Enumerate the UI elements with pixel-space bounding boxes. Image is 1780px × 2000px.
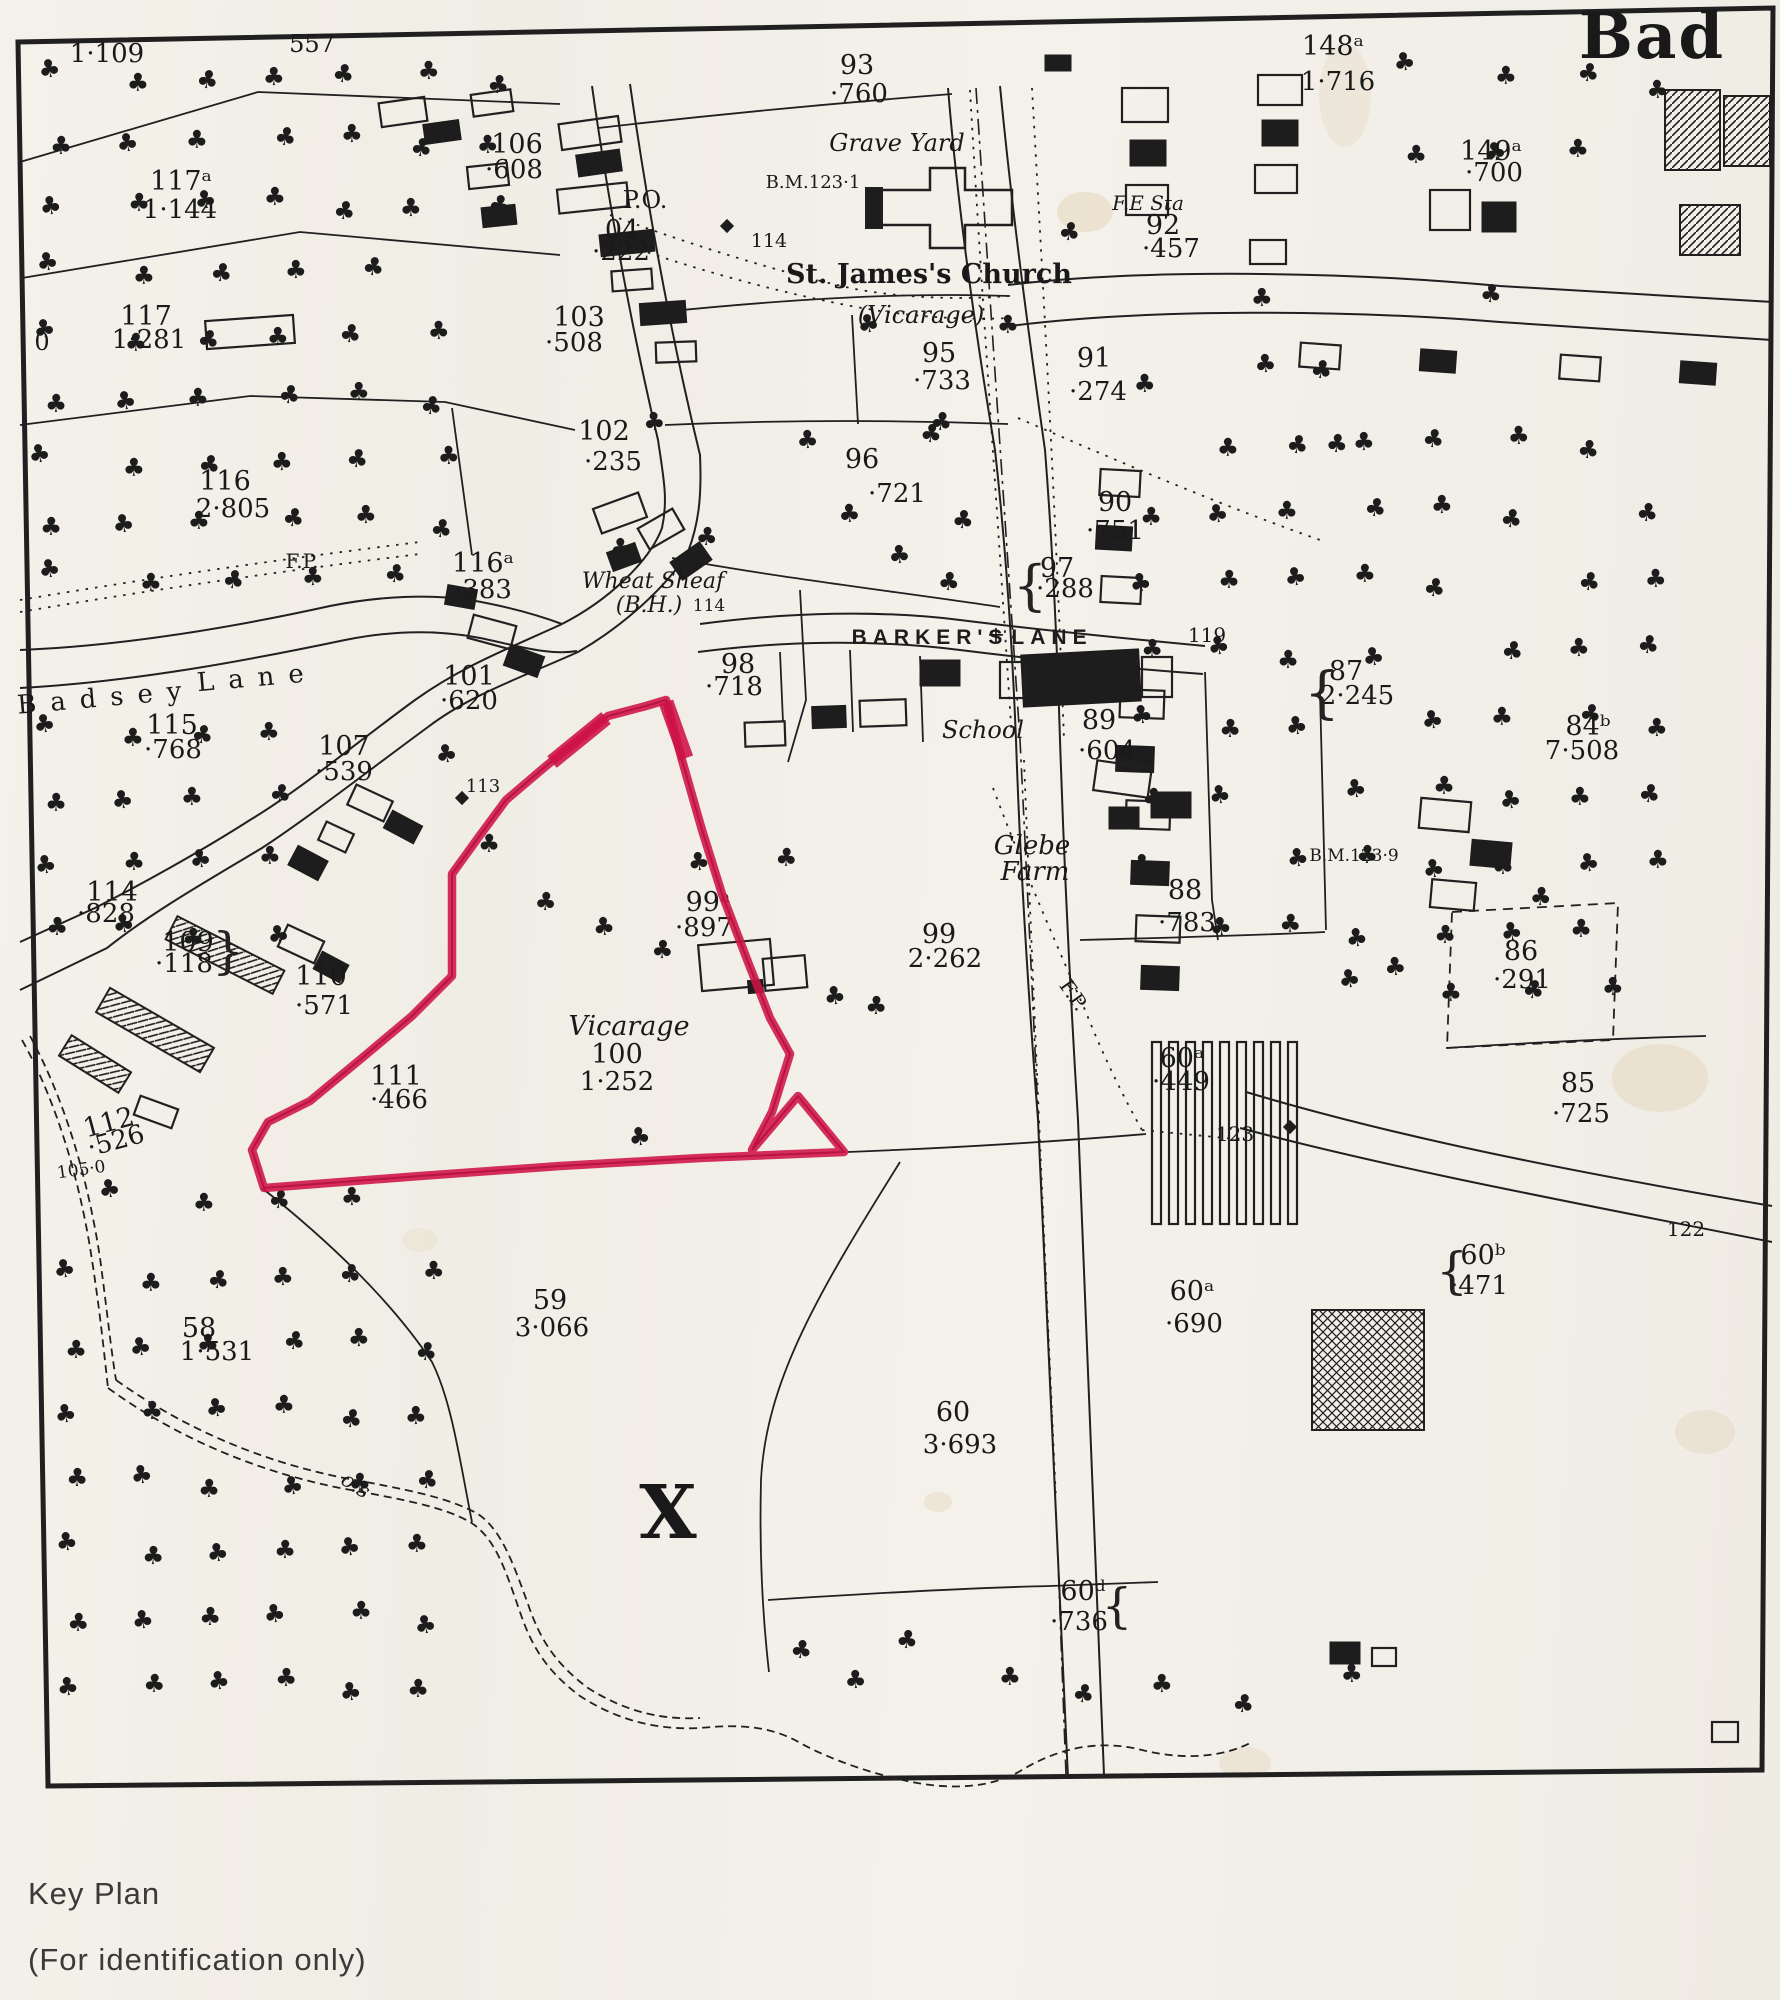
map-label: { <box>1436 1242 1468 1300</box>
orchard-tree-icon: ♣ <box>1433 771 1456 800</box>
orchard-tree-icon: ♣ <box>1253 348 1278 379</box>
orchard-tree-icon: ♣ <box>198 1474 221 1503</box>
orchard-tree-icon: ♣ <box>427 316 450 346</box>
orchard-tree-icon: ♣ <box>264 918 292 951</box>
orchard-tree-icon: ♣ <box>997 310 1019 339</box>
map-label: { <box>1013 554 1047 617</box>
building <box>288 845 328 880</box>
caption-key-plan: Key Plan <box>28 1876 160 1912</box>
orchard-tree-icon: ♣ <box>1647 845 1669 874</box>
orchard-tree-icon: ♣ <box>1217 433 1239 462</box>
orchard-tree-icon: ♣ <box>205 1263 233 1296</box>
orchard-tree-icon: ♣ <box>1575 433 1602 465</box>
orchard-tree-icon: ♣ <box>1219 714 1242 744</box>
map-label: ·235 <box>584 447 642 477</box>
map-label: BARKER'S <box>852 626 1009 649</box>
building <box>1712 1722 1738 1742</box>
orchard-tree-icon: ♣ <box>50 131 73 160</box>
orchard-tree-icon: ♣ <box>432 737 460 770</box>
orchard-tree-icon: ♣ <box>1230 1687 1258 1720</box>
map-label: Farm <box>1000 857 1070 887</box>
orchard-tree-icon: ♣ <box>1128 698 1155 730</box>
orchard-tree-icon: ♣ <box>1127 566 1155 599</box>
orchard-tree-icon: ♣ <box>1343 921 1370 953</box>
orchard-tree-icon: ♣ <box>1340 1659 1363 1689</box>
map-label: 96 <box>845 444 879 475</box>
map-label: 90 <box>1098 487 1132 518</box>
map-label: 85 <box>1561 1068 1595 1099</box>
orchard-tree-icon: ♣ <box>1390 45 1418 78</box>
orchard-tree-icon: ♣ <box>1206 778 1233 810</box>
orchard-tree-icon: ♣ <box>918 418 945 450</box>
map-label: ·222 <box>592 237 650 267</box>
map-label: 148ᵃ <box>1302 31 1364 62</box>
orchard-tree-icon: ♣ <box>382 557 410 590</box>
orchard-tree-icon: ♣ <box>406 1529 428 1558</box>
map-label: 113 <box>466 776 500 797</box>
map-label: B.M.123·9 <box>1309 846 1398 866</box>
building <box>812 705 847 728</box>
orchard-tree-icon: ♣ <box>1129 848 1156 880</box>
orchard-tree-icon: ♣ <box>52 1397 80 1430</box>
map-label: { <box>1102 1578 1133 1634</box>
map-label: (B.H.) <box>616 593 683 618</box>
orchard-tree-icon: ♣ <box>264 182 286 211</box>
building <box>611 269 652 292</box>
map-label: 117ᵃ <box>150 166 212 197</box>
orchard-tree-icon: ♣ <box>204 1536 232 1569</box>
orchard-tree-icon: ♣ <box>127 68 149 97</box>
orchard-tree-icon: ♣ <box>347 1323 370 1352</box>
orchard-tree-icon: ♣ <box>274 1535 297 1564</box>
orchard-tree-icon: ♣ <box>1354 559 1376 588</box>
building <box>96 988 214 1072</box>
map-label: ·751 <box>1086 516 1144 546</box>
building <box>1679 361 1716 385</box>
orchard-tree-icon: ♣ <box>335 1530 363 1563</box>
map-label: ·733 <box>913 366 971 396</box>
map-label: 0 <box>34 328 49 356</box>
map-label: LANE <box>1011 626 1092 649</box>
orchard-tree-icon: ♣ <box>267 777 295 810</box>
orchard-tree-icon: ♣ <box>272 120 300 153</box>
orchard-tree-icon: ♣ <box>413 1335 441 1368</box>
map-label: 2·805 <box>196 494 270 524</box>
orchard-tree-icon: ♣ <box>53 1525 80 1557</box>
orchard-tree-icon: ♣ <box>220 563 248 596</box>
building <box>383 810 422 844</box>
orchard-tree-icon: ♣ <box>140 1268 162 1297</box>
orchard-tree-icon: ♣ <box>414 1463 442 1496</box>
building <box>1258 75 1302 105</box>
orchard-tree-icon: ♣ <box>694 521 719 552</box>
orchard-tree-icon: ♣ <box>186 125 208 154</box>
map-label: ·725 <box>1552 1099 1610 1129</box>
orchard-tree-icon: ♣ <box>123 847 146 876</box>
orchard-tree-icon: ♣ <box>186 842 214 875</box>
map-label: 86 <box>1504 936 1538 967</box>
orchard-tree-icon: ♣ <box>1495 61 1517 90</box>
map-label: ·608 <box>485 155 543 185</box>
orchard-tree-icon: ♣ <box>141 1396 164 1425</box>
orchard-tree-icon: ♣ <box>408 131 436 164</box>
orchard-tree-icon: ♣ <box>344 442 372 475</box>
orchard-tree-icon: ♣ <box>202 1391 230 1424</box>
orchard-tree-icon: ♣ <box>1499 634 1527 667</box>
orchard-tree-icon: ♣ <box>360 250 388 283</box>
map-label: ·571 <box>295 991 353 1021</box>
orchard-tree-icon: ♣ <box>66 1607 90 1637</box>
orchard-tree-icon: ♣ <box>418 389 446 422</box>
orchard-tree-icon: ♣ <box>1440 978 1462 1007</box>
building <box>59 1035 131 1092</box>
orchard-tree-icon: ♣ <box>837 498 861 528</box>
orchard-tree-icon: ♣ <box>187 383 209 412</box>
orchard-tree-icon: ♣ <box>142 1668 166 1698</box>
building <box>1130 140 1166 166</box>
orchard-tree-icon: ♣ <box>1528 881 1553 912</box>
orchard-tree-icon: ♣ <box>1478 278 1504 310</box>
orchard-tree-icon: ♣ <box>1278 908 1302 938</box>
orchard-tree-icon: ♣ <box>340 1182 363 1211</box>
orchard-tree-icon: ♣ <box>330 57 358 90</box>
orchard-tree-icon: ♣ <box>354 500 377 529</box>
building <box>1419 349 1456 373</box>
scanned-key-plan-page: { "page": { "caption_line1": "Key Plan",… <box>0 0 1780 2000</box>
building <box>1372 1648 1396 1666</box>
building <box>1250 240 1286 264</box>
map-label: { <box>1304 661 1340 726</box>
orchard-tree-icon: ♣ <box>1324 428 1350 460</box>
map-label: P.O. <box>623 186 668 214</box>
orchard-tree-icon: ♣ <box>133 261 155 290</box>
map-label: ·604 <box>1078 736 1136 766</box>
map-label: ·508 <box>545 328 603 358</box>
orchard-tree-icon: ♣ <box>126 1330 154 1363</box>
orchard-tree-icon: ♣ <box>281 1324 309 1357</box>
orchard-tree-icon: ♣ <box>66 1463 89 1493</box>
map-label: ·700 <box>1465 158 1523 188</box>
orchard-tree-icon: ♣ <box>25 437 53 470</box>
orchard-tree-icon: ♣ <box>259 841 281 870</box>
orchard-tree-icon: ♣ <box>796 424 820 454</box>
map-label: ·897 <box>675 913 733 943</box>
orchard-tree-icon: ♣ <box>485 68 512 100</box>
orchard-tree-icon: ♣ <box>1635 628 1663 661</box>
map-label: ·291 <box>1493 965 1551 995</box>
map-label: 119 <box>1188 623 1226 647</box>
map-label: 1·144 <box>143 195 217 225</box>
orchard-tree-icon: ♣ <box>1218 565 1241 594</box>
map-label: 1·531 <box>180 1337 254 1367</box>
map-label: ·274 <box>1069 377 1127 407</box>
orchard-tree-icon: ♣ <box>1645 713 1668 742</box>
building <box>347 785 393 822</box>
building <box>1430 879 1476 911</box>
orchard-tree-icon: ♣ <box>1284 841 1311 873</box>
orchard-tree-icon: ♣ <box>1362 491 1390 524</box>
map-label: School <box>942 716 1024 744</box>
map-label: 60ᵃ <box>1170 1276 1215 1307</box>
map-label: Wheat Sheaf <box>582 569 728 594</box>
orchard-tree-icon: ♣ <box>278 1469 306 1502</box>
orchard-tree-icon: ♣ <box>208 256 236 289</box>
map-label: 95 <box>922 338 956 369</box>
orchard-tree-icon: ♣ <box>266 322 289 351</box>
map-label: 88 <box>1168 875 1202 906</box>
orchard-tree-icon: ♣ <box>340 119 363 148</box>
orchard-tree-icon: ♣ <box>1645 74 1669 104</box>
orchard-tree-icon: ♣ <box>411 1608 439 1641</box>
orchard-tree-icon: ♣ <box>262 62 285 91</box>
orchard-tree-icon: ♣ <box>45 389 68 418</box>
orchard-tree-icon: ♣ <box>1141 782 1165 812</box>
road-diamond-marker <box>1283 1120 1297 1134</box>
orchard-tree-icon: ♣ <box>108 783 136 816</box>
orchard-tree-icon: ♣ <box>1250 283 1273 312</box>
building <box>1141 965 1180 990</box>
orchard-tree-icon: ♣ <box>1601 972 1624 1001</box>
map-label: 93 <box>840 50 874 81</box>
orchard-trees-layer: ♣♣♣♣♣♣♣♣♣♣♣♣♣♣♣♣♣♣♣♣♣♣♣♣♣♣♣♣♣♣♣♣♣♣♣♣♣♣♣♣… <box>25 45 1669 1720</box>
building <box>1724 96 1770 166</box>
map-label: } <box>212 922 244 980</box>
orchard-tree-icon: ♣ <box>821 979 848 1011</box>
orchard-tree-icon: ♣ <box>404 1401 427 1430</box>
building <box>318 822 354 853</box>
orchard-tree-icon: ♣ <box>123 453 145 482</box>
orchard-tree-icon: ♣ <box>1141 634 1164 664</box>
orchard-tree-icon: ♣ <box>428 512 456 545</box>
map-label: 89 <box>1082 705 1116 736</box>
orchard-tree-icon: ♣ <box>275 1663 298 1693</box>
map-label: 91 <box>1077 343 1111 374</box>
map-label: Grave Yard <box>829 129 964 157</box>
church-building <box>880 168 1012 248</box>
road-diamond-marker <box>720 219 734 233</box>
map-label: 557 <box>289 30 335 58</box>
orchard-tree-icon: ♣ <box>1576 565 1604 598</box>
red-x-mark: X <box>639 1470 697 1556</box>
building <box>1271 1042 1280 1224</box>
orchard-tree-icon: ♣ <box>1418 703 1446 736</box>
caption-identification: (For identification only) <box>28 1942 367 1978</box>
map-label: ·539 <box>315 757 373 787</box>
map-label: F.P. <box>1054 975 1093 1016</box>
orchard-tree-icon: ♣ <box>422 1256 445 1286</box>
building <box>745 721 786 746</box>
building <box>1109 807 1139 829</box>
orchard-tree-icon: ♣ <box>1421 571 1449 604</box>
orchard-tree-icon: ♣ <box>437 441 460 471</box>
map-label: 110 <box>295 961 347 992</box>
map-label: 114 <box>751 230 787 252</box>
orchard-tree-icon: ♣ <box>650 934 674 964</box>
orchard-tree-icon: ♣ <box>1070 1677 1098 1710</box>
map-label: ·466 <box>370 1085 428 1115</box>
orchard-tree-icon: ♣ <box>1420 422 1448 455</box>
main-road-west-edge <box>948 88 1068 1778</box>
orchard-tree-icon: ♣ <box>1342 772 1370 805</box>
map-label: 116 <box>199 466 251 497</box>
orchard-tree-icon: ♣ <box>1133 369 1156 399</box>
orchard-tree-icon: ♣ <box>1150 1669 1173 1698</box>
orchard-tree-icon: ♣ <box>1491 702 1513 731</box>
orchard-tree-icon: ♣ <box>45 788 68 817</box>
orchard-tree-icon: ♣ <box>129 1603 156 1635</box>
orchard-tree-icon: ♣ <box>46 912 69 942</box>
map-label: 1·281 <box>112 325 186 355</box>
orchard-tree-icon: ♣ <box>1276 496 1298 525</box>
orchard-tree-icon: ♣ <box>111 384 139 417</box>
map-label: 3·693 <box>923 1430 997 1460</box>
orchard-tree-icon: ♣ <box>65 1335 88 1364</box>
orchard-tree-icon: ♣ <box>331 194 359 227</box>
orchard-tree-icon: ♣ <box>1636 777 1664 810</box>
orchard-tree-icon: ♣ <box>122 723 144 752</box>
orchard-tree-icon: ♣ <box>1644 564 1667 594</box>
building <box>1430 190 1470 230</box>
building <box>1021 649 1142 707</box>
map-label: 3·066 <box>515 1313 589 1343</box>
orchard-tree-icon: ♣ <box>273 1390 295 1419</box>
building <box>1665 90 1720 170</box>
building <box>379 97 428 127</box>
map-label: Vicarage <box>568 1011 689 1042</box>
orchard-tree-icon: ♣ <box>1203 497 1231 530</box>
building <box>639 300 686 325</box>
red-boundary-wedge <box>552 718 606 762</box>
orchard-tree-icon: ♣ <box>533 886 558 917</box>
building <box>860 699 907 727</box>
map-label: St. James's Church <box>786 259 1072 290</box>
orchard-tree-icon: ♣ <box>337 1257 365 1290</box>
orchard-tree-icon: ♣ <box>1382 951 1407 982</box>
orchard-tree-icon: ♣ <box>140 568 162 597</box>
orchard-tree-icon: ♣ <box>865 991 888 1021</box>
map-label: 123 <box>1216 1122 1254 1146</box>
map-label: 114 <box>693 596 725 616</box>
orchard-tree-icon: ♣ <box>1359 640 1387 673</box>
orchard-tree-icon: ♣ <box>33 245 61 278</box>
orchard-tree-icon: ♣ <box>128 1458 156 1491</box>
orchard-tree-icon: ♣ <box>261 1597 289 1630</box>
orchard-tree-icon: ♣ <box>199 1602 222 1632</box>
building <box>1559 355 1601 382</box>
map-canvas: ♣♣♣♣♣♣♣♣♣♣♣♣♣♣♣♣♣♣♣♣♣♣♣♣♣♣♣♣♣♣♣♣♣♣♣♣♣♣♣♣… <box>0 0 1780 2000</box>
orchard-tree-icon: ♣ <box>1498 502 1526 535</box>
building <box>1255 165 1297 193</box>
map-label: 1·252 <box>580 1067 654 1097</box>
building <box>1680 205 1740 255</box>
orchard-tree-icon: ♣ <box>338 1402 366 1435</box>
orchard-tree-icon: ♣ <box>50 1252 78 1285</box>
orchard-tree-icon: ♣ <box>271 1262 294 1291</box>
orchard-tree-icon: ♣ <box>276 378 304 411</box>
building <box>557 182 629 213</box>
orchard-tree-icon: ♣ <box>407 1674 430 1703</box>
orchard-tree-icon: ♣ <box>1056 215 1084 248</box>
orchard-tree-icon: ♣ <box>399 193 422 222</box>
map-label: ·449 <box>1152 1067 1210 1097</box>
orchard-tree-icon: ♣ <box>844 1664 868 1694</box>
orchard-tree-icon: ♣ <box>1574 846 1602 879</box>
orchard-tree-icon: ♣ <box>35 52 63 85</box>
orchard-tree-icon: ♣ <box>1284 428 1312 461</box>
map-label: ·718 <box>705 672 763 702</box>
map-label: 2·262 <box>908 944 982 974</box>
orchard-tree-icon: ♣ <box>1335 962 1363 995</box>
building <box>1482 202 1516 232</box>
map-label: 102 <box>578 416 630 447</box>
orchard-tree-icon: ♣ <box>1507 421 1530 451</box>
orchard-tree-icon: ♣ <box>591 911 617 943</box>
map-label: ·457 <box>1142 234 1200 264</box>
map-label: ·736 <box>1050 1607 1108 1637</box>
orchard-tree-icon: ♣ <box>350 1596 373 1625</box>
orchard-tree-icon: ♣ <box>193 1188 215 1217</box>
orchard-tree-icon: ♣ <box>337 317 365 350</box>
orchard-tree-icon: ♣ <box>1277 645 1300 674</box>
orchard-tree-icon: ♣ <box>37 189 65 222</box>
map-label: F.P. <box>286 549 319 573</box>
orchard-tree-icon: ♣ <box>626 1120 654 1153</box>
orchard-tree-icon: ♣ <box>1492 851 1515 880</box>
orchard-tree-icon: ♣ <box>1352 427 1375 456</box>
church-tower <box>866 188 882 228</box>
main-road-east-edge <box>1000 86 1104 1775</box>
orchard-tree-icon: ♣ <box>887 539 912 570</box>
orchard-tree-icon: ♣ <box>270 447 293 476</box>
orchard-tree-icon: ♣ <box>1308 353 1336 386</box>
building <box>1045 55 1071 71</box>
building <box>558 116 621 150</box>
map-label: 60 <box>936 1397 970 1428</box>
building <box>576 149 623 177</box>
building <box>1419 798 1471 832</box>
map-label: (Vicarage) <box>858 301 984 329</box>
orchard-tree-icon: ♣ <box>1567 134 1589 163</box>
orchard-tree-icon: ♣ <box>40 512 63 541</box>
orchard-tree-icon: ♣ <box>1434 920 1457 950</box>
orchard-tree-icon: ♣ <box>35 552 63 585</box>
orchard-tree-icon: ♣ <box>32 848 60 881</box>
map-label: 1·109 <box>70 39 144 69</box>
map-label: ·620 <box>440 686 498 716</box>
orchard-tree-icon: ♣ <box>1405 140 1428 169</box>
parish-boundary-line <box>976 88 1066 1775</box>
map-label: 100 <box>591 1039 643 1070</box>
map-label: ·760 <box>830 79 888 109</box>
map-label: B.M.123·1 <box>766 172 861 193</box>
key-plan-map: ♣♣♣♣♣♣♣♣♣♣♣♣♣♣♣♣♣♣♣♣♣♣♣♣♣♣♣♣♣♣♣♣♣♣♣♣♣♣♣♣… <box>0 0 1780 2000</box>
building <box>1122 88 1168 122</box>
topright-road-south-edge <box>1010 313 1772 340</box>
orchard-tree-icon: ♣ <box>641 406 666 437</box>
orchard-tree-icon: ♣ <box>1569 782 1591 811</box>
orchard-tree-icon: ♣ <box>194 63 222 96</box>
map-label: ·783 <box>1158 908 1216 938</box>
map-label: 60ᵈ <box>1060 1576 1105 1607</box>
orchard-tree-icon: ♣ <box>936 566 962 598</box>
orchard-tree-icon: ♣ <box>1420 852 1448 885</box>
map-label: ·690 <box>1165 1309 1223 1339</box>
orchard-tree-icon: ♣ <box>1567 633 1590 662</box>
map-label: + <box>987 623 1005 648</box>
orchard-tree-icon: ♣ <box>1634 496 1661 528</box>
building <box>1312 1310 1424 1430</box>
orchard-tree-icon: ♣ <box>1496 783 1524 816</box>
